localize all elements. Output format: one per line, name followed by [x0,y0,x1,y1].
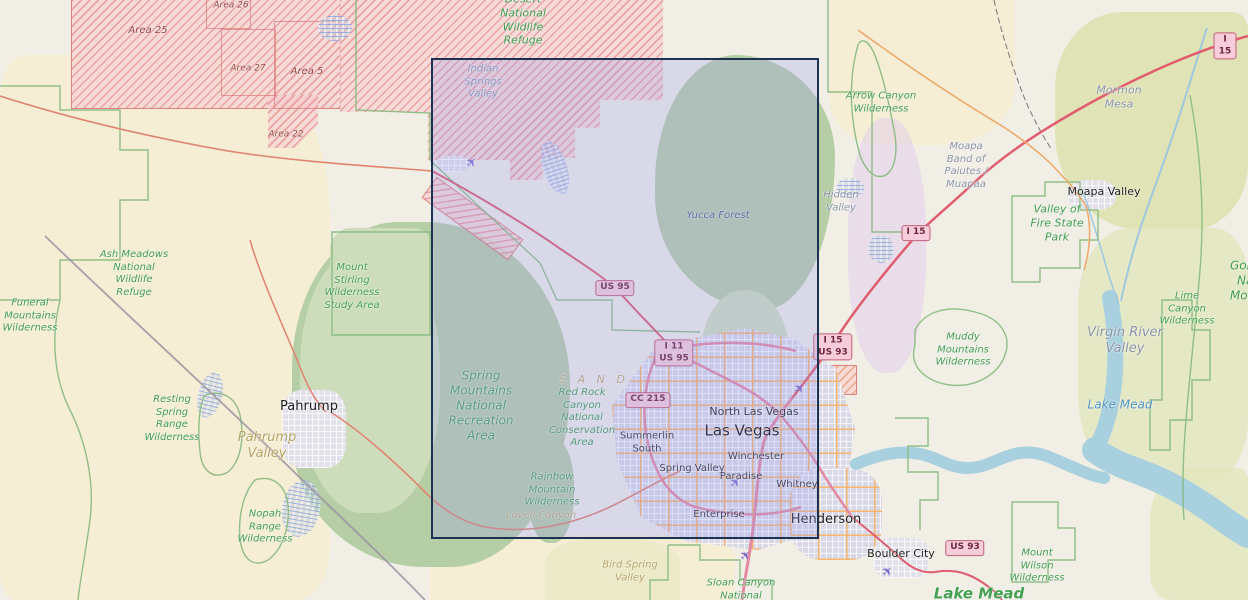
map-label-boulder-city: Boulder City [867,547,935,561]
route-shield-i-15: I 15 [901,225,930,241]
airport-icon: ✈ [737,547,755,565]
map-label-lime-canyon-wilderness: Lime Canyon Wilderness [1157,290,1218,328]
map-label-funeral-mountains-wilderness: Funeral Mountains Wilderness [3,297,58,335]
route-shield-i-15-us-93: I 15 US 93 [813,333,852,360]
map-label-mount-stirling-wilderness-study-area: Mount Stirling Wilderness Study Area [324,262,379,312]
selection-rectangle[interactable] [431,58,819,539]
map-label-lake-mead: Lake Mead [934,585,1024,600]
map-label-moapa-band-of-paiutes-muapaa: Moapa Band of Paiutes / Muapaa [944,141,987,191]
map-label-resting-spring-range-wilderness: Resting Spring Range Wilderness [145,394,200,444]
map-label-mount-wilson-wilderness: Mount Wilson Wilderness [1010,547,1065,585]
route-shield-i-15: I 15 [1214,32,1237,59]
map-label-pahrump: Pahrump [280,399,338,415]
map-label-area-27: Area 27 [230,63,265,74]
map-label-virgin-river-valley: Virgin River Valley [1087,325,1163,358]
map-label-sloan-canyon-national-conservation: Sloan Canyon National Conservation [707,577,776,600]
map-label-desert-national-wildlife-refuge: Desert National Wildlife Refuge [500,0,546,48]
map-label-muddy-mountains-wilderness: Muddy Mountains Wilderness [936,331,991,369]
map-label-valley-of-fire-state-park: Valley of Fire State Park [1030,202,1083,243]
airport-icon: ✈ [879,563,897,581]
map-label-area-22: Area 22 [268,129,303,140]
route-shield-us-93: US 93 [945,540,984,556]
map-canvas[interactable]: Desert National Wildlife RefugeAsh Meado… [0,0,1248,600]
map-label-moapa-valley: Moapa Valley [1068,185,1141,199]
map-label-area-5: Area 5 [291,66,324,79]
map-label-ash-meadows-national-wildlife-refuge: Ash Meadows National Wildlife Refuge [100,249,168,299]
map-label-bird-spring-valley: Bird Spring Valley [602,560,658,585]
map-label-mormon-mesa: Mormon Mesa [1096,83,1141,111]
map-label-gold-butte-national-monument: Gold Butte National Monument [1230,259,1248,304]
map-label-nopah-range-wilderness: Nopah Range Wilderness [238,508,293,546]
map-label-pahrump-valley: Pahrump Valley [238,430,297,463]
map-label-lake-mead: Lake Mead [1088,398,1153,413]
map-label-hidden-valley: Hidden Valley [823,190,858,215]
map-label-area-26: Area 26 [213,0,248,11]
map-label-area-25: Area 25 [128,25,167,38]
map-label-arrow-canyon-wilderness: Arrow Canyon Wilderness [846,91,916,116]
